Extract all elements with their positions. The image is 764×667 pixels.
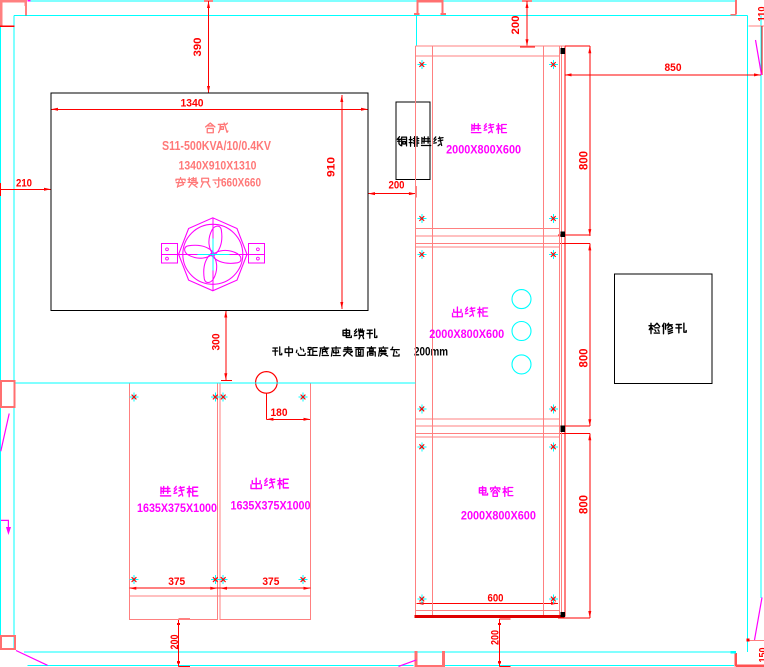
svg-text:200mm: 200mm	[414, 345, 448, 359]
svg-text:1635X375X1000: 1635X375X1000	[137, 503, 217, 515]
svg-text:800: 800	[577, 151, 591, 170]
svg-text:800: 800	[577, 495, 591, 514]
svg-text:110: 110	[756, 6, 764, 21]
svg-text:200: 200	[389, 180, 405, 192]
svg-text:375: 375	[168, 576, 185, 588]
svg-text:660X660: 660X660	[221, 178, 261, 190]
svg-text:2000X800X600: 2000X800X600	[446, 145, 521, 157]
svg-text:910: 910	[326, 157, 338, 177]
svg-text:2000X800X600: 2000X800X600	[429, 329, 504, 341]
svg-text:150: 150	[757, 647, 764, 662]
svg-text:300: 300	[211, 334, 223, 351]
svg-text:600: 600	[488, 593, 504, 605]
svg-text:210: 210	[16, 178, 32, 190]
svg-text:2000X800X600: 2000X800X600	[461, 511, 536, 523]
svg-text:1340X910X1310: 1340X910X1310	[179, 159, 257, 173]
svg-text:800: 800	[577, 348, 591, 367]
svg-text:850: 850	[665, 62, 682, 74]
svg-text:375: 375	[262, 576, 279, 588]
svg-text:1635X375X1000: 1635X375X1000	[231, 501, 311, 513]
svg-text:1340: 1340	[181, 98, 204, 110]
svg-text:200: 200	[169, 635, 181, 650]
svg-text:200: 200	[510, 16, 522, 35]
svg-text:200: 200	[490, 630, 502, 645]
svg-text:S11-500KVA/10/0.4KV: S11-500KVA/10/0.4KV	[162, 139, 272, 153]
svg-text:180: 180	[271, 407, 288, 419]
svg-text:390: 390	[192, 38, 204, 57]
